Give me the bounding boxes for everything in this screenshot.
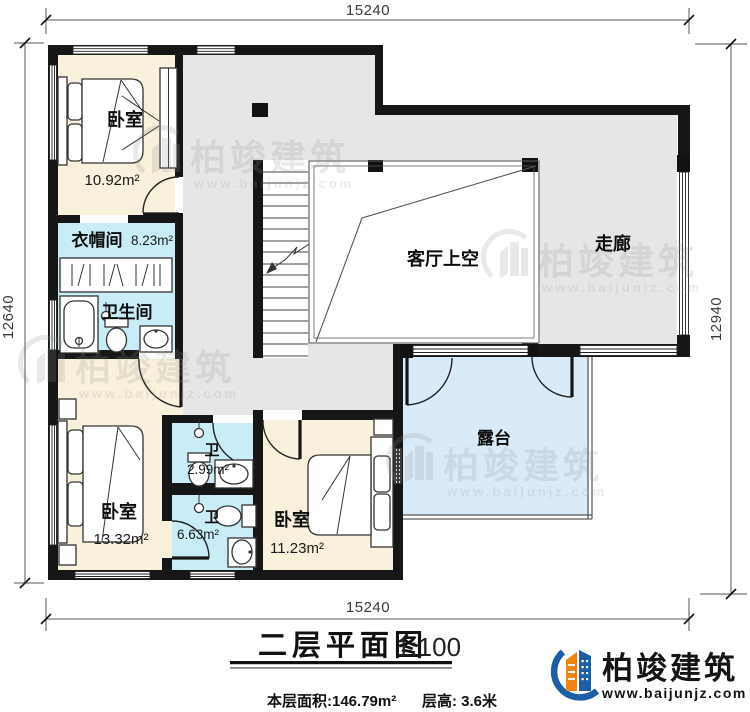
wardrobe [60, 258, 172, 292]
title-underline-thick [230, 661, 452, 664]
toilet-ensuite [215, 505, 256, 527]
dim-right: 12940 [695, 39, 747, 599]
title-underline-thin [230, 667, 452, 669]
label-cloakroom: 衣帽间 [72, 230, 123, 250]
window-corridor-south-1 [413, 346, 528, 356]
brand-logo-icon [554, 650, 597, 697]
floor-height-text: 层高: 3.6米 [422, 692, 498, 710]
label-bathroom: 卫生间 [102, 302, 153, 322]
plan-scale: 1:100 [396, 632, 461, 662]
title-block: 二层平面图 1:100 本层面积:146.79m² 层高: 3.6米 [230, 630, 498, 710]
brand-website: www.baijunjz.com [601, 685, 747, 701]
dim-left: 12640 [0, 38, 44, 588]
label-bedroom-bl: 卧室 [101, 501, 137, 522]
window-top-1 [73, 46, 148, 54]
window-top-2 [197, 46, 235, 54]
floor-plan-drawing: 柏竣建筑 www.baijunjz.com 卧室 10.92m² 衣帽间 8.2… [0, 0, 750, 712]
brand-name: 柏竣建筑 [602, 651, 738, 686]
dim-top: 15240 [41, 2, 694, 34]
sink-ensuite [228, 538, 256, 567]
window-bottom-2 [190, 572, 235, 579]
window-bottom-1 [75, 572, 150, 579]
area-bath-common: 2.99m² [187, 462, 230, 477]
label-corridor: 走廊 [595, 233, 631, 254]
window-left-1 [50, 65, 57, 160]
label-bedroom-bm: 卧室 [274, 509, 310, 530]
dim-bottom-value: 15240 [346, 599, 390, 616]
area-bath-ensuite: 6.63m² [177, 527, 220, 542]
dim-left-value: 12640 [0, 295, 17, 339]
label-bath-common: 卫 [204, 442, 219, 459]
window-left-2 [50, 300, 57, 350]
dim-right-value: 12940 [708, 297, 725, 341]
window-left-3 [50, 425, 57, 545]
shower [60, 296, 98, 353]
window-corridor-south-2 [580, 346, 677, 356]
area-bedroom-bm: 11.23m² [270, 540, 324, 557]
area-cloakroom: 8.23m² [131, 233, 174, 248]
label-bath-ensuite: 卫 [204, 509, 219, 526]
area-bedroom-tl: 10.92m² [84, 172, 139, 189]
label-living-void: 客厅上空 [407, 248, 479, 269]
floor-area-text: 本层面积:146.79m² [267, 692, 396, 710]
label-terrace: 露台 [477, 428, 511, 448]
area-bedroom-bl: 13.32m² [93, 531, 148, 548]
brand-logo: 柏竣建筑 www.baijunjz.com [554, 650, 747, 701]
dim-bottom: 15240 [41, 598, 694, 631]
label-bedroom-tl: 卧室 [107, 109, 143, 130]
dim-top-value: 15240 [346, 2, 390, 19]
floor-plan-page: 柏竣建筑 www.baijunjz.com 卧室 10.92m² 衣帽间 8.2… [0, 0, 750, 712]
